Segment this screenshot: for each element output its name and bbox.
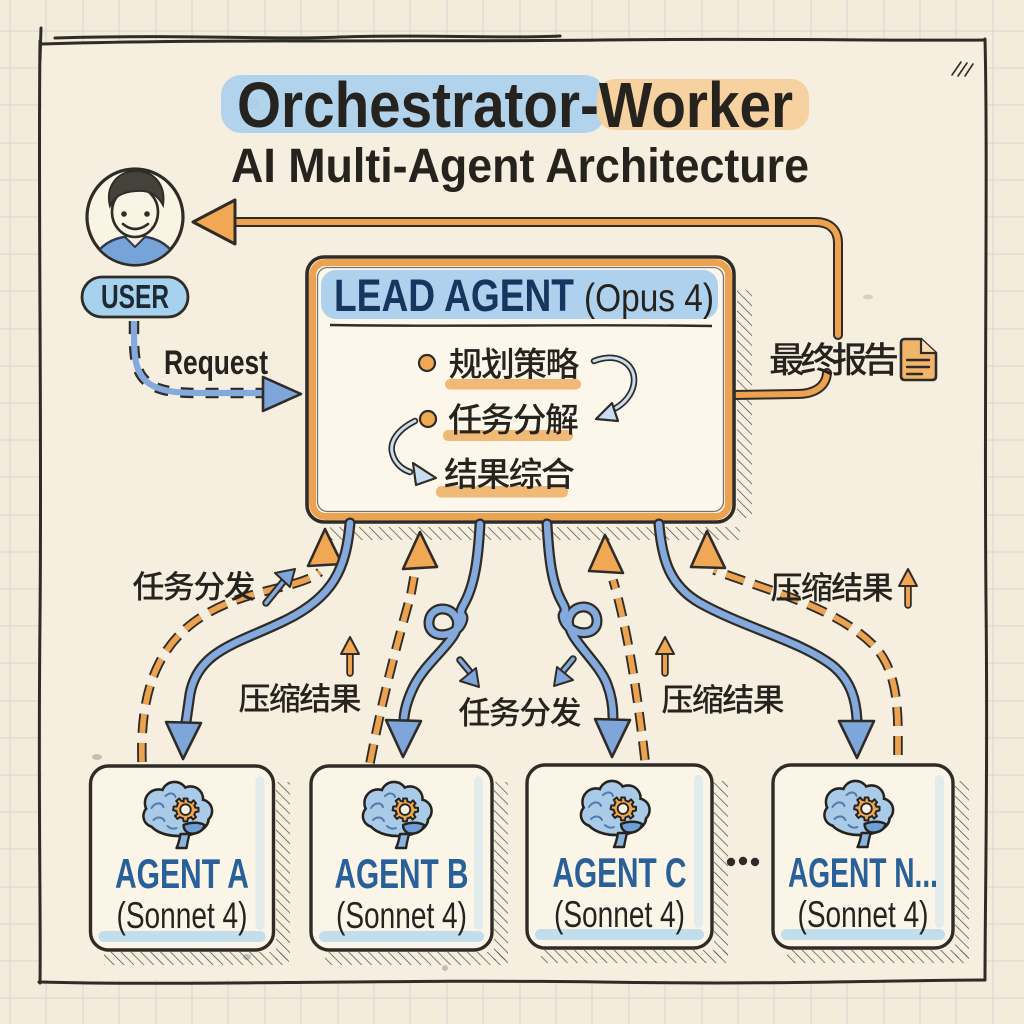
svg-text:USER: USER [101,278,169,315]
svg-text:LEAD AGENT: LEAD AGENT [334,270,574,321]
svg-text:(Sonnet 4): (Sonnet 4) [554,894,685,935]
svg-text:AGENT C: AGENT C [553,849,687,896]
svg-text:AI Multi-Agent Architecture: AI Multi-Agent Architecture [231,140,809,193]
svg-text:(Sonnet 4): (Sonnet 4) [798,894,929,935]
svg-text:AGENT B: AGENT B [335,850,469,897]
svg-text:Request: Request [164,344,268,382]
svg-text:Orchestrator-Worker: Orchestrator-Worker [237,69,793,141]
svg-text:(Opus 4): (Opus 4) [584,277,714,320]
svg-text:AGENT A: AGENT A [115,850,249,897]
svg-text:(Sonnet 4): (Sonnet 4) [336,895,467,936]
svg-text:AGENT N...: AGENT N... [788,849,938,896]
svg-text:(Sonnet 4): (Sonnet 4) [117,895,248,936]
